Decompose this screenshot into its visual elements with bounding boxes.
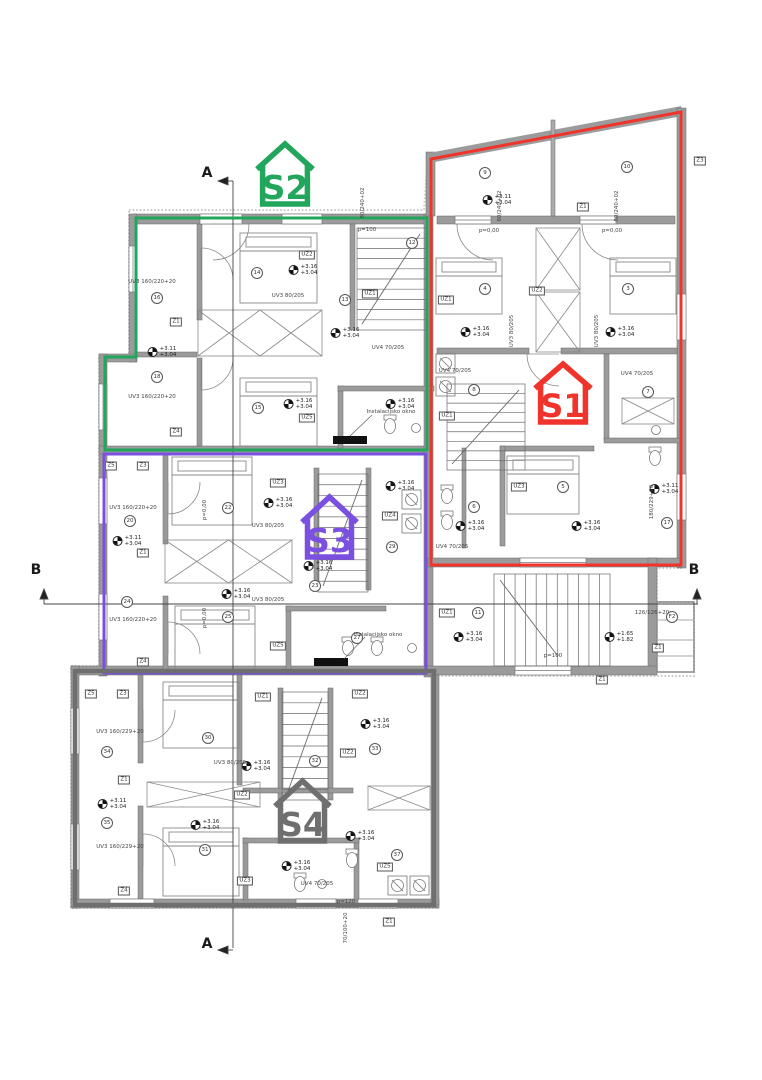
installation-window-mark — [314, 658, 348, 666]
unit-label-s1: S1 — [540, 387, 585, 425]
unit-house-s2: S2 — [257, 144, 313, 207]
staircase — [447, 384, 525, 470]
installation-window-mark — [333, 436, 367, 444]
unit-label-s2: S2 — [262, 168, 309, 207]
toilet — [441, 511, 453, 530]
unit-label-s3: S3 — [306, 521, 353, 560]
door-swing — [582, 224, 618, 260]
leader-line — [350, 415, 372, 436]
washbasin — [652, 426, 661, 435]
door-swing — [201, 248, 233, 280]
floor-plan-drawing: S1S2S3S4 — [0, 0, 762, 1080]
bed — [175, 606, 255, 670]
house-roof-icon — [257, 144, 313, 169]
toilet — [649, 447, 661, 466]
unit-label-s4: S4 — [279, 805, 326, 844]
house-roof-icon — [535, 364, 591, 388]
door-swing — [168, 622, 200, 654]
bed — [240, 233, 317, 303]
washbasin — [408, 644, 417, 653]
wardrobe — [198, 310, 322, 356]
appliance — [436, 377, 455, 396]
bed — [436, 258, 502, 314]
appliance — [402, 514, 421, 533]
unit-boundary-s2 — [105, 218, 427, 450]
appliance — [402, 490, 421, 509]
appliance — [410, 876, 429, 895]
wardrobe — [165, 540, 292, 583]
toilet — [384, 415, 396, 434]
wardrobe — [536, 228, 580, 290]
door-swing — [143, 834, 175, 866]
washbasin — [318, 880, 327, 889]
unit-boundary-s1 — [431, 112, 681, 565]
appliance — [388, 876, 407, 895]
staircase — [357, 228, 426, 330]
door-swing — [457, 224, 493, 260]
wardrobe — [147, 782, 260, 807]
door-swing — [201, 358, 233, 390]
bed — [172, 457, 252, 525]
toilet — [441, 485, 453, 504]
wardrobe — [622, 398, 674, 424]
bed — [507, 456, 579, 514]
staircase — [494, 574, 610, 666]
wardrobe — [368, 786, 430, 810]
door-swing — [168, 482, 200, 514]
door-swing — [143, 710, 175, 742]
door-swing — [213, 224, 249, 260]
washbasin — [412, 424, 421, 433]
toilet — [346, 849, 358, 868]
doors-layer — [143, 224, 618, 866]
toilet — [294, 873, 306, 892]
toilet — [371, 637, 383, 656]
unit-house-s1: S1 — [535, 364, 591, 425]
bed — [610, 258, 676, 314]
appliance — [436, 354, 455, 373]
floor-plan-canvas: S1S2S3S4 +3.11+3.04+3.16+3.04+3.16+3.04+… — [0, 0, 762, 1080]
toilet — [342, 637, 354, 656]
wardrobe — [536, 292, 580, 352]
bed — [240, 378, 317, 446]
